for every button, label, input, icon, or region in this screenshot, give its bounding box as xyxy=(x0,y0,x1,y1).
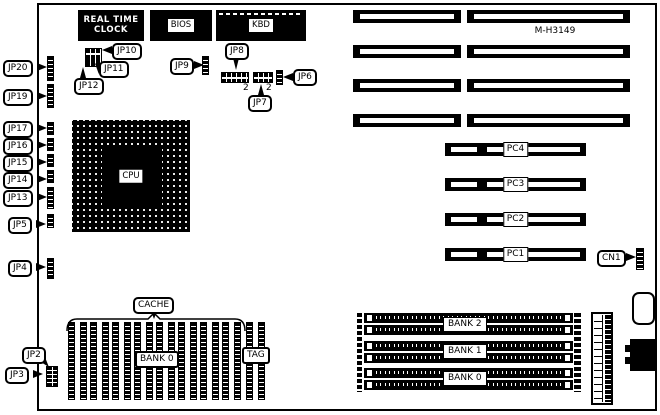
jp8-callout: JP8 xyxy=(225,43,249,60)
jp6-jumper xyxy=(276,70,283,85)
cache-chip-3 xyxy=(112,322,131,400)
jp8-jumper xyxy=(221,72,249,83)
pc2-slot: PC2 xyxy=(445,213,586,226)
jp17-callout: JP17 xyxy=(3,121,33,138)
rtc-chip: REAL TIME CLOCK xyxy=(78,10,144,41)
jp3-callout: JP3 xyxy=(5,367,29,384)
jp9-callout: JP9 xyxy=(170,58,194,75)
jp10-pointer xyxy=(102,46,112,54)
rtc-label-line2: CLOCK xyxy=(94,26,128,36)
jp3-pointer xyxy=(33,370,43,378)
motherboard-diagram: REAL TIME CLOCK BIOS KBD M-H3149 PC4 PC3… xyxy=(0,0,660,415)
jp19-callout: JP19 xyxy=(3,89,33,106)
board-model-text: M-H3149 xyxy=(515,27,595,36)
jp16-jumper xyxy=(47,138,54,151)
cn1-pointer xyxy=(626,253,636,261)
jp13-callout: JP13 xyxy=(3,190,33,207)
din-tab-bottom xyxy=(625,357,631,364)
bank0-label: BANK 0 xyxy=(443,371,487,386)
jp4-pointer xyxy=(36,263,46,271)
jp10-callout: JP10 xyxy=(112,43,142,60)
jp8-pin2-label: 2 xyxy=(243,84,249,93)
jp13-pointer xyxy=(37,193,47,201)
jp6-callout: JP6 xyxy=(293,69,317,86)
simm-right-endcap xyxy=(574,313,581,392)
jp9-jumper xyxy=(202,56,209,75)
bios-chip: BIOS xyxy=(150,10,212,41)
cpu-label: CPU xyxy=(119,170,142,183)
jp12-pointer xyxy=(80,67,86,78)
jp7-callout: JP7 xyxy=(248,95,272,112)
pc4-slot: PC4 xyxy=(445,143,586,156)
isa-slot-long-1 xyxy=(467,10,630,23)
jp4-jumper xyxy=(47,258,54,279)
jp11-callout: JP11 xyxy=(99,61,129,78)
jp5-callout: JP5 xyxy=(8,217,32,234)
pc1-slot: PC1 xyxy=(445,248,586,261)
pc3-label: PC3 xyxy=(503,177,528,192)
jp16-callout: JP16 xyxy=(3,138,33,155)
tag-label: TAG xyxy=(242,347,270,364)
kbd-chip-notch xyxy=(219,13,303,15)
isa-slot-long-2 xyxy=(467,45,630,58)
jp7-pin2-label: 2 xyxy=(266,84,272,93)
keyboard-din-connector xyxy=(630,339,657,371)
pc3-slot: PC3 xyxy=(445,178,586,191)
jp7-jumper xyxy=(253,72,273,83)
jp20-callout: JP20 xyxy=(3,60,33,77)
jp4-callout: JP4 xyxy=(8,260,32,277)
jp14-jumper xyxy=(47,170,54,183)
jp17-pointer xyxy=(37,124,47,132)
pc4-label: PC4 xyxy=(503,142,528,157)
cn1-connector xyxy=(636,248,644,270)
isa-slot-short-1 xyxy=(353,10,461,23)
jp15-jumper xyxy=(47,154,54,167)
jp5-pointer xyxy=(36,220,46,228)
simm-left-endcap xyxy=(357,313,362,392)
jp7-pointer xyxy=(258,84,264,95)
din-tab-top xyxy=(625,345,631,352)
bios-label: BIOS xyxy=(168,19,194,32)
cache-chip-7 xyxy=(200,322,219,400)
cache-chip-6 xyxy=(178,322,197,400)
jp2-jp3-jumper xyxy=(46,366,58,387)
jp13-jumper xyxy=(47,187,54,209)
isa-slot-short-3 xyxy=(353,79,461,92)
cache-chip-1 xyxy=(68,322,87,400)
jp12-callout: JP12 xyxy=(74,78,104,95)
bank2-label: BANK 2 xyxy=(443,317,487,332)
isa-slot-short-4 xyxy=(353,114,461,127)
pc2-label: PC2 xyxy=(503,212,528,227)
cache-chip-8 xyxy=(222,322,241,400)
cache-callout: CACHE xyxy=(133,297,174,314)
cpu-socket: CPU xyxy=(72,120,190,232)
isa-slot-long-4 xyxy=(467,114,630,127)
jp14-callout: JP14 xyxy=(3,172,33,189)
jp17-jumper xyxy=(47,122,54,135)
jp20-jumper xyxy=(47,56,54,81)
kbd-label: KBD xyxy=(249,19,273,32)
keyboard-opening xyxy=(632,292,655,325)
jp6-pointer xyxy=(283,73,293,81)
keyboard-controller-chip: KBD xyxy=(216,10,306,41)
cache-bank0-label: BANK 0 xyxy=(135,351,179,368)
isa-slot-long-3 xyxy=(467,79,630,92)
jp20-pointer xyxy=(37,63,47,71)
jp14-pointer xyxy=(37,175,47,183)
isa-slot-short-2 xyxy=(353,45,461,58)
jp19-pointer xyxy=(37,92,47,100)
cn1-callout: CN1 xyxy=(597,250,626,267)
jp2-callout: JP2 xyxy=(22,347,46,364)
jp16-pointer xyxy=(37,141,47,149)
cache-chip-2 xyxy=(90,322,109,400)
pc1-label: PC1 xyxy=(503,247,528,262)
bank1-label: BANK 1 xyxy=(443,344,487,359)
jp15-callout: JP15 xyxy=(3,155,33,172)
power-connector xyxy=(591,312,613,405)
jp19-jumper xyxy=(47,84,54,108)
jp15-pointer xyxy=(37,158,47,166)
jp5-jumper xyxy=(47,214,54,228)
